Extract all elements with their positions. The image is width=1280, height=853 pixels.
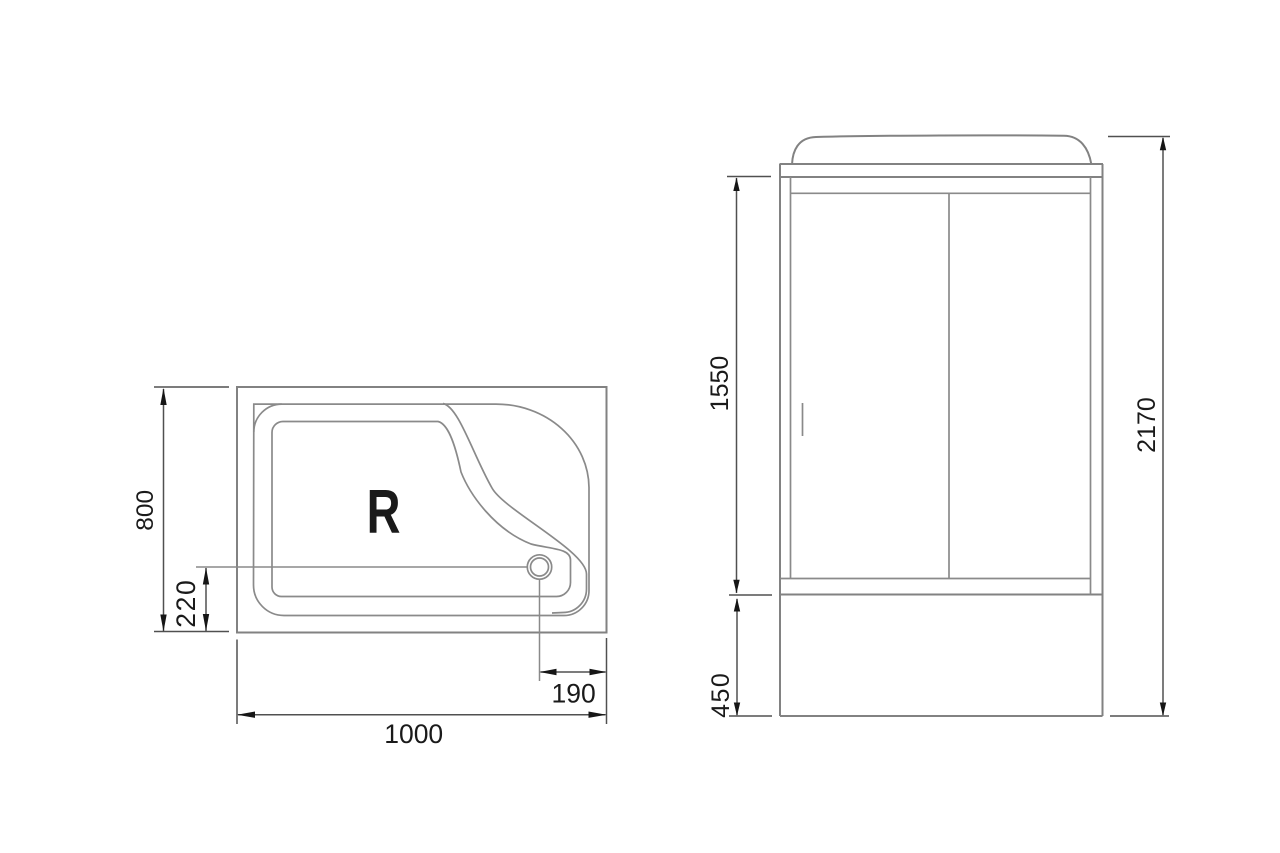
svg-text:1550: 1550 xyxy=(706,356,734,412)
svg-text:800: 800 xyxy=(132,490,159,531)
svg-text:2170: 2170 xyxy=(1133,397,1161,453)
svg-text:220: 220 xyxy=(171,579,201,628)
svg-text:450: 450 xyxy=(707,672,735,718)
svg-text:190: 190 xyxy=(551,679,595,709)
svg-text:R: R xyxy=(367,477,401,547)
svg-text:1000: 1000 xyxy=(384,719,443,749)
